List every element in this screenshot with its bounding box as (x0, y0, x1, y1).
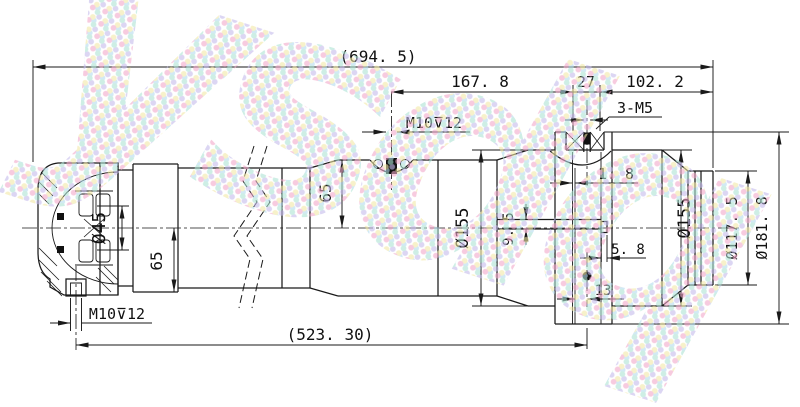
dim-hole-offset: 13 (557, 283, 624, 299)
dim-groove: 1. 8 (550, 165, 638, 183)
dim-seg-left-label: 167. 8 (451, 72, 509, 91)
dim-dia-nose-label: Ø45 (89, 212, 110, 245)
dim-thread-top: M10⊽12 (362, 114, 470, 132)
dim-overall-length-label: (694. 5) (339, 47, 416, 66)
dim-seg-right-label: 102. 2 (626, 72, 684, 91)
drawing-canvas: (694. 5) 167. 8 27 102. 2 3-M5 M10⊽12 M1… (0, 0, 800, 407)
dim-thread-flange: 3-M5 (565, 99, 662, 129)
dim-dia-end-label: Ø117. 5 (723, 196, 741, 259)
dim-hole-offset-label: 13 (595, 283, 612, 299)
dim-radius-left-label: 65 (147, 251, 166, 270)
dim-radius-right-label: 65 (316, 183, 335, 202)
dim-thread-bottom: M10⊽12 (50, 298, 152, 331)
dim-dia-body-left-label: Ø155 (453, 208, 473, 249)
dim-thread-flange-label: 3-M5 (617, 99, 653, 117)
dim-overall-length: (694. 5) (33, 47, 713, 168)
dim-dia-body-right-label: Ø155 (675, 198, 695, 239)
dim-thread-top-label: M10⊽12 (406, 114, 462, 132)
flange-hole-dot (583, 272, 592, 281)
dim-mount-length: (523. 30) (76, 325, 587, 349)
dim-mount-length-label: (523. 30) (287, 325, 374, 344)
break-lines (234, 146, 270, 308)
top-tap-hole (370, 158, 413, 174)
dim-thread-bottom-label: M10⊽12 (89, 305, 145, 323)
dim-keyway-width: 9. 5 (501, 204, 526, 246)
dim-seg-mid-label: 27 (577, 73, 595, 91)
dim-radius-right: 65 (316, 160, 342, 228)
engineering-drawing: (694. 5) 167. 8 27 102. 2 3-M5 M10⊽12 M1… (0, 0, 800, 407)
dim-key-length: 5. 8 (580, 235, 646, 262)
dim-dia-flange-label: Ø181. 8 (753, 196, 771, 259)
dim-key-length-label: 5. 8 (611, 242, 645, 258)
dim-radius-left: 65 (147, 228, 174, 292)
dim-keyway-width-label: 9. 5 (501, 212, 517, 246)
dim-groove-label: 1. 8 (598, 165, 634, 183)
